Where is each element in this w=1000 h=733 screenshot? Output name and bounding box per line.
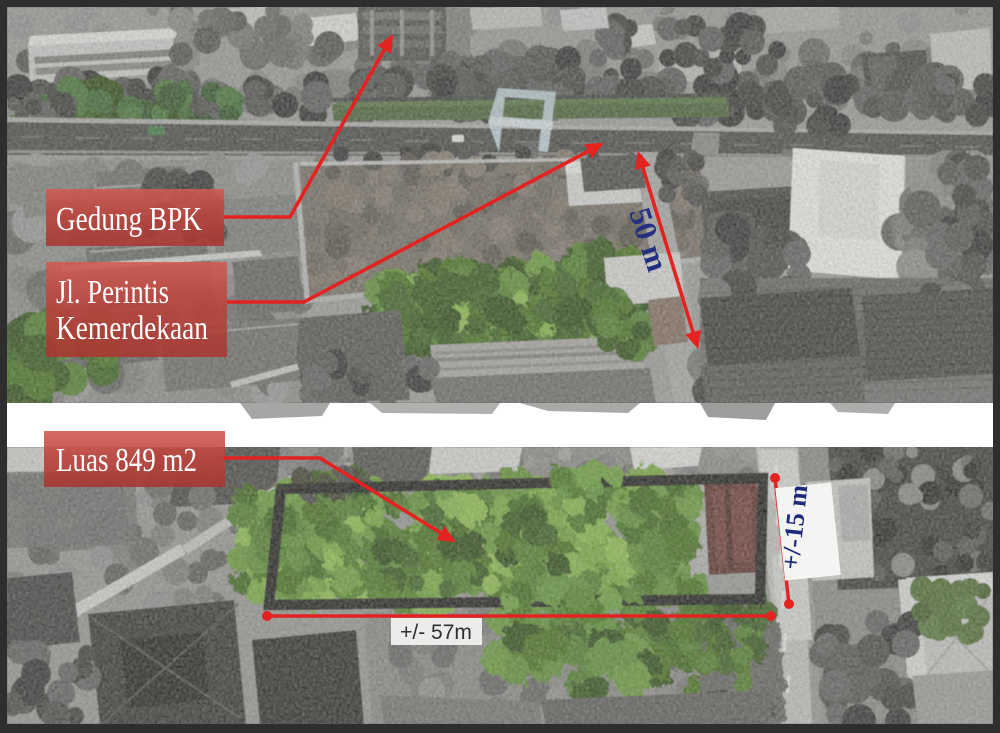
svg-text:+/- 57m: +/- 57m [400, 621, 472, 644]
svg-text:Jl. Perintis: Jl. Perintis [56, 274, 169, 311]
svg-text:Kemerdekaan: Kemerdekaan [56, 310, 208, 347]
svg-text:Luas 849 m2: Luas 849 m2 [56, 442, 197, 479]
svg-text:Gedung BPK: Gedung BPK [56, 201, 202, 238]
